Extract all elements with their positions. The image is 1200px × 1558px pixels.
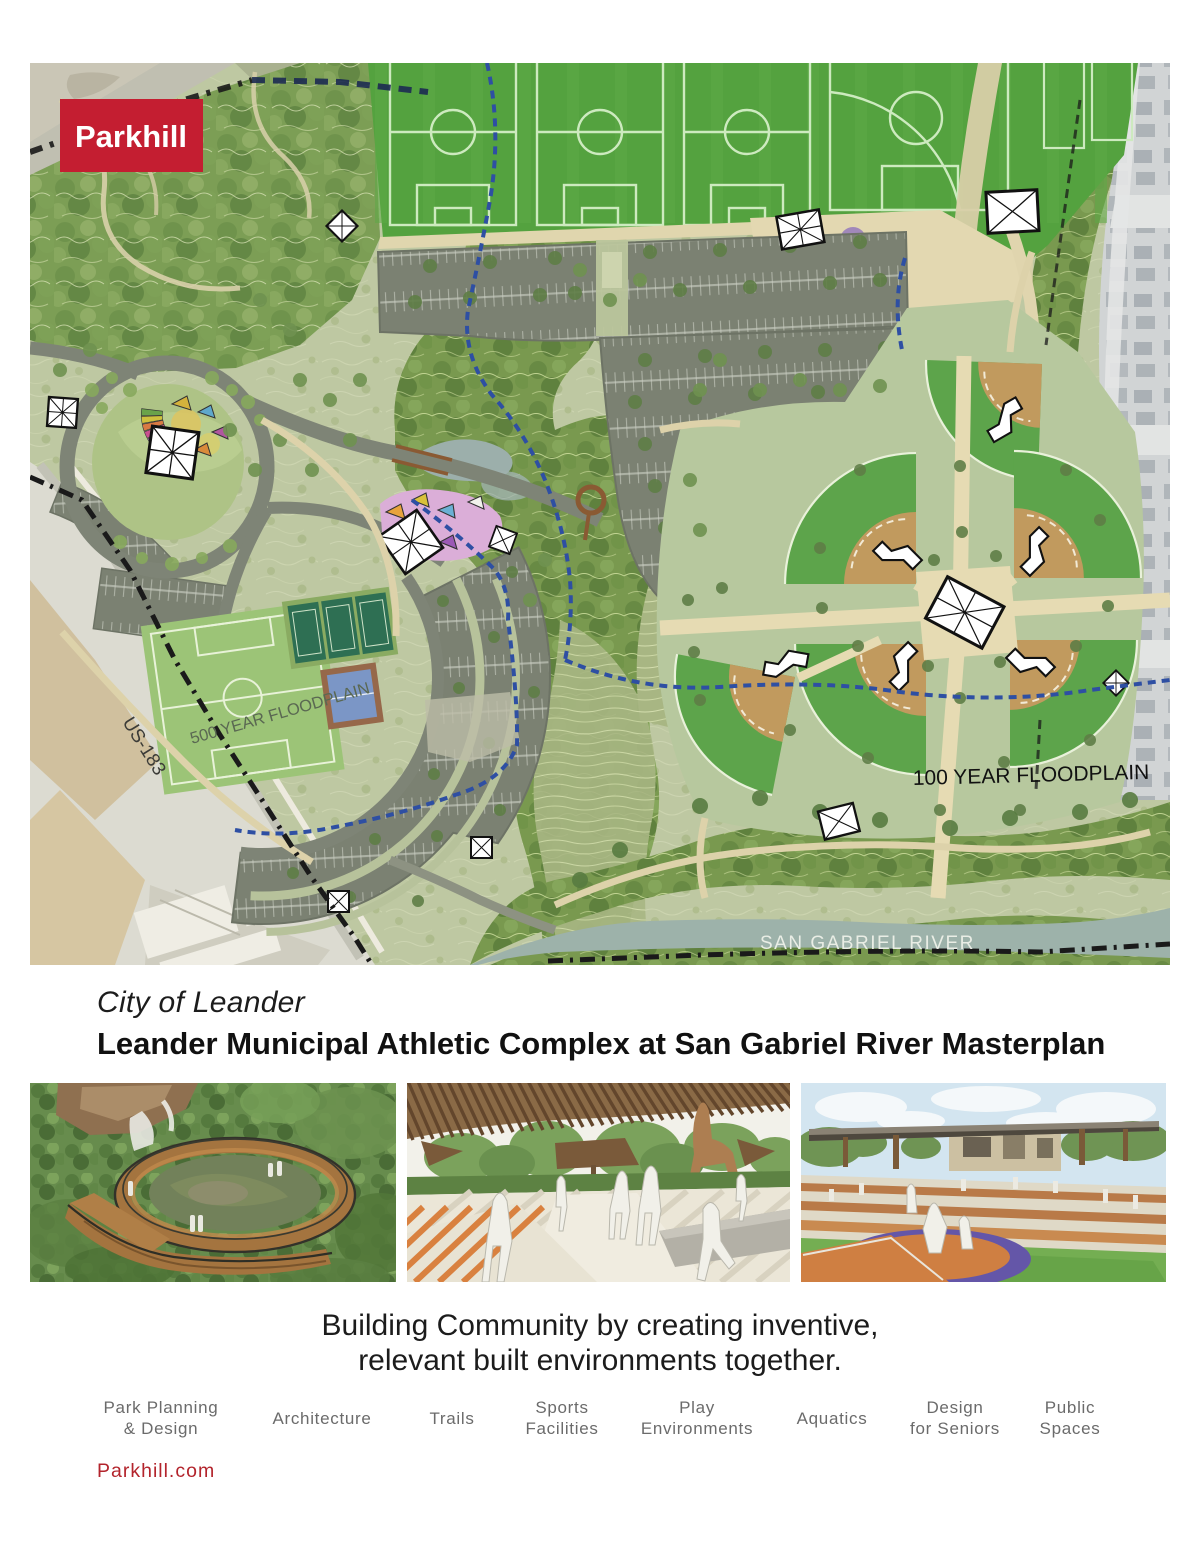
svg-text:SAN GABRIEL RIVER: SAN GABRIEL RIVER — [760, 933, 975, 954]
svg-text:Parkhill: Parkhill — [75, 119, 187, 154]
